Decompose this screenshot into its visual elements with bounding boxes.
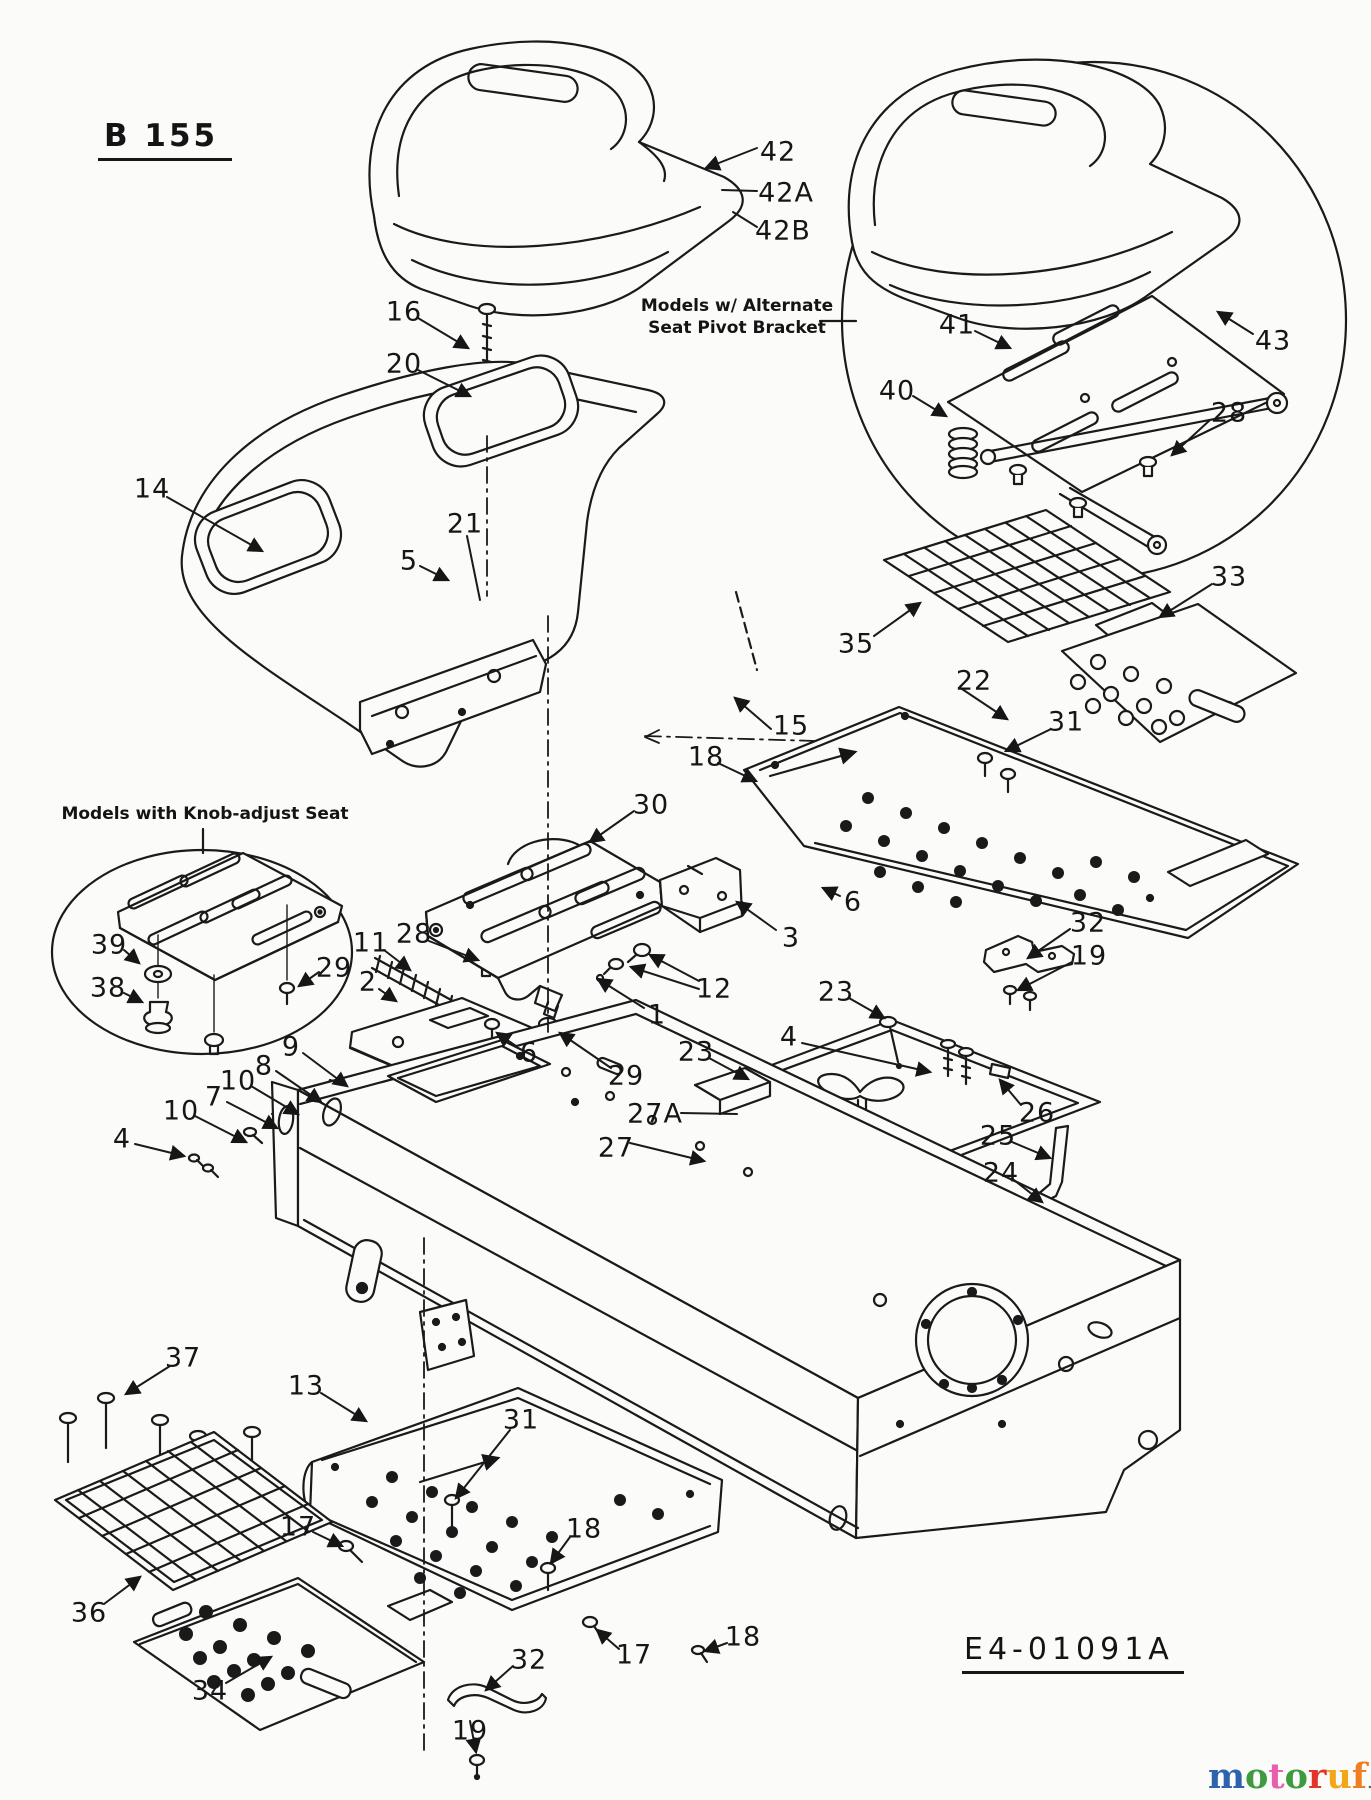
- motoruf-watermark: motoruf.de: [1208, 1756, 1371, 1797]
- callout-23: 23: [818, 977, 854, 1008]
- callout-31: 31: [503, 1405, 539, 1436]
- watermark-letter: f: [1352, 1756, 1367, 1797]
- callout-3: 3: [782, 923, 800, 954]
- seat-drawing: [369, 42, 742, 316]
- callout-2: 2: [359, 967, 377, 998]
- callout-39: 39: [91, 930, 127, 961]
- watermark-letter: o: [1245, 1756, 1268, 1797]
- callout-29: 29: [316, 953, 352, 984]
- callout-26: 26: [1019, 1098, 1055, 1129]
- callout-22: 22: [956, 666, 992, 697]
- callout-42A: 42A: [758, 178, 814, 209]
- callout-8: 8: [255, 1051, 273, 1082]
- callout-10: 10: [220, 1066, 256, 1097]
- watermark-letter: m: [1208, 1756, 1245, 1797]
- callout-32: 32: [1070, 908, 1106, 939]
- watermark-letter: t: [1268, 1756, 1284, 1797]
- callout-27A: 27A: [627, 1099, 683, 1130]
- callout-18: 18: [566, 1514, 602, 1545]
- callout-19: 19: [452, 1716, 488, 1747]
- callout-40: 40: [879, 376, 915, 407]
- callout-38: 38: [90, 973, 126, 1004]
- callout-6: 6: [844, 887, 862, 918]
- callout-36: 36: [71, 1598, 107, 1629]
- callout-10: 10: [163, 1096, 199, 1127]
- callout-43: 43: [1255, 326, 1291, 357]
- watermark-letter: r: [1308, 1756, 1326, 1797]
- callout-41: 41: [939, 310, 975, 341]
- callout-35: 35: [838, 629, 874, 660]
- callout-4: 4: [113, 1124, 131, 1155]
- alternate-seat-inset-drawing: [842, 60, 1346, 578]
- callout-21: 21: [447, 509, 483, 540]
- callout-32: 32: [511, 1645, 547, 1676]
- note-line: Models w/ Alternate: [641, 296, 833, 316]
- callout-16: 16: [386, 297, 422, 328]
- callout-31: 31: [1048, 707, 1084, 738]
- callout-19: 19: [1071, 941, 1107, 972]
- callout-33: 33: [1211, 562, 1247, 593]
- callout-28: 28: [396, 919, 432, 950]
- callout-17: 17: [616, 1640, 652, 1671]
- drawing-number: E4-01091A: [962, 1632, 1184, 1674]
- note-line: Seat Pivot Bracket: [648, 318, 826, 338]
- callout-23: 23: [678, 1037, 714, 1068]
- bracket-32-upper-drawing: [984, 936, 1074, 1010]
- callout-20: 20: [386, 349, 422, 380]
- callout-18: 18: [688, 742, 724, 773]
- callout-25: 25: [980, 1121, 1016, 1152]
- callout-42B: 42B: [755, 216, 811, 247]
- watermark-suffix: .de: [1367, 1771, 1371, 1793]
- callout-1: 1: [648, 1000, 666, 1031]
- running-board-22-drawing: [744, 707, 1298, 938]
- callout-7: 7: [205, 1082, 223, 1113]
- note-knob-adjust-seat: Models with Knob-adjust Seat: [61, 803, 348, 825]
- page-title: B 155: [98, 118, 232, 161]
- footrest-grid-36-drawing: [55, 1393, 332, 1590]
- callout-27: 27: [598, 1133, 634, 1164]
- callout-30: 30: [633, 790, 669, 821]
- callout-34: 34: [192, 1676, 228, 1707]
- note-alternate-seat: Models w/ Alternate Seat Pivot Bracket: [641, 295, 833, 339]
- seat-bracket-30-drawing: [426, 839, 742, 1018]
- callout-12: 12: [696, 974, 732, 1005]
- callout-18: 18: [725, 1622, 761, 1653]
- watermark-letter: o: [1285, 1756, 1308, 1797]
- callout-15: 15: [773, 711, 809, 742]
- callout-29: 29: [608, 1061, 644, 1092]
- callout-11: 11: [353, 928, 389, 959]
- callout-42: 42: [760, 137, 796, 168]
- callout-37: 37: [165, 1343, 201, 1374]
- footrest-pad-34-drawing: [134, 1578, 424, 1730]
- callout-4: 4: [780, 1022, 798, 1053]
- watermark-letter: u: [1326, 1756, 1351, 1797]
- callout-28: 28: [1211, 398, 1247, 429]
- callout-24: 24: [983, 1158, 1019, 1189]
- parts-diagram-page: B 155 Models w/ Alternate Seat Pivot Bra…: [0, 0, 1371, 1800]
- fender-drawing: [182, 347, 757, 766]
- callout-9: 9: [282, 1032, 300, 1063]
- callout-14: 14: [134, 474, 170, 505]
- callout-13: 13: [288, 1371, 324, 1402]
- callout-6: 6: [520, 1038, 538, 1069]
- callout-17: 17: [280, 1512, 316, 1543]
- callout-5: 5: [400, 546, 418, 577]
- diagram-drawing: [0, 0, 1371, 1800]
